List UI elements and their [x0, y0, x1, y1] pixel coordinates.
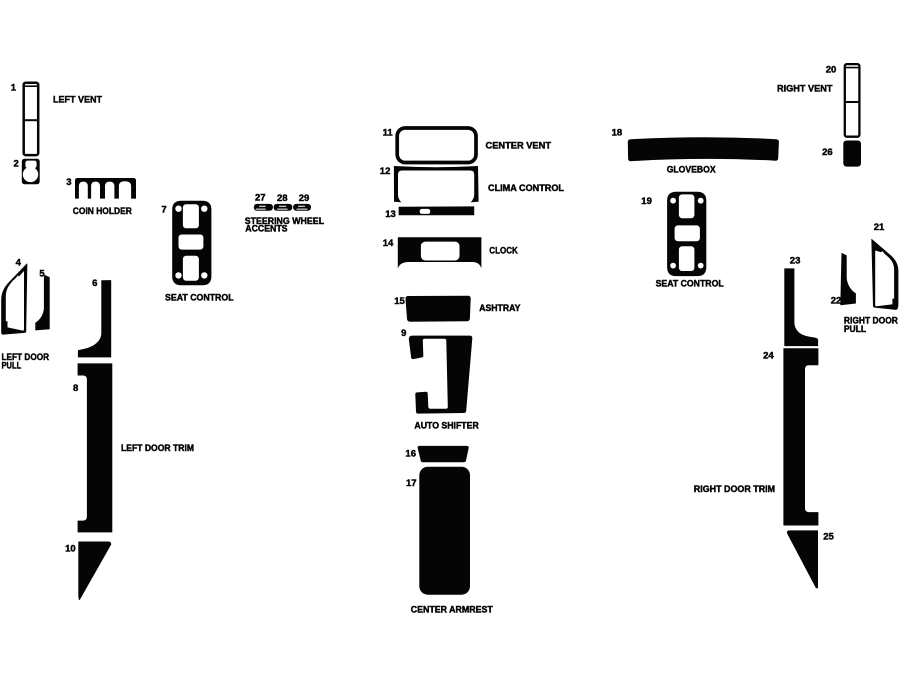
svg-text:RIGHT DOOR TRIM: RIGHT DOOR TRIM — [694, 484, 775, 495]
svg-text:CENTER VENT: CENTER VENT — [486, 140, 552, 151]
svg-text:23: 23 — [790, 255, 801, 266]
svg-text:LEFT VENT: LEFT VENT — [53, 95, 102, 106]
svg-text:PULL: PULL — [2, 361, 22, 372]
svg-text:19: 19 — [641, 196, 652, 207]
svg-text:18: 18 — [612, 128, 623, 139]
svg-text:20: 20 — [826, 64, 837, 75]
svg-text:24: 24 — [763, 351, 774, 362]
svg-text:GLOVEBOX: GLOVEBOX — [667, 164, 717, 175]
svg-text:25: 25 — [823, 532, 834, 543]
svg-text:17: 17 — [406, 478, 417, 489]
svg-text:22: 22 — [831, 296, 842, 307]
svg-text:29: 29 — [299, 193, 310, 204]
svg-text:SEAT CONTROL: SEAT CONTROL — [656, 279, 724, 290]
svg-text:5: 5 — [39, 269, 45, 280]
svg-text:15: 15 — [394, 296, 405, 307]
svg-text:13: 13 — [385, 209, 396, 220]
svg-text:21: 21 — [874, 222, 885, 233]
svg-text:LEFT DOOR TRIM: LEFT DOOR TRIM — [121, 443, 194, 454]
svg-text:4: 4 — [16, 258, 22, 269]
svg-text:ACCENTS: ACCENTS — [245, 223, 287, 234]
svg-text:7: 7 — [161, 205, 166, 216]
svg-text:16: 16 — [405, 449, 416, 460]
svg-text:26: 26 — [822, 147, 833, 158]
svg-text:12: 12 — [380, 166, 391, 177]
svg-text:AUTO SHIFTER: AUTO SHIFTER — [414, 420, 479, 431]
svg-text:1: 1 — [11, 82, 17, 93]
svg-text:RIGHT VENT: RIGHT VENT — [777, 83, 833, 94]
svg-text:2: 2 — [14, 158, 19, 169]
svg-text:11: 11 — [383, 128, 394, 139]
svg-text:SEAT CONTROL: SEAT CONTROL — [165, 292, 234, 303]
svg-text:CLIMA CONTROL: CLIMA CONTROL — [488, 183, 564, 194]
svg-text:14: 14 — [383, 238, 394, 249]
svg-text:8: 8 — [73, 383, 78, 394]
svg-text:COIN HOLDER: COIN HOLDER — [73, 206, 132, 217]
svg-text:10: 10 — [65, 543, 76, 554]
svg-text:PULL: PULL — [844, 324, 866, 335]
svg-text:9: 9 — [401, 328, 406, 339]
svg-text:CENTER ARMREST: CENTER ARMREST — [411, 605, 493, 616]
svg-text:ASHTRAY: ASHTRAY — [479, 303, 521, 314]
svg-text:CLOCK: CLOCK — [489, 245, 518, 256]
svg-text:27: 27 — [255, 193, 266, 204]
svg-text:6: 6 — [92, 278, 97, 289]
svg-text:28: 28 — [277, 193, 288, 204]
svg-text:3: 3 — [66, 177, 71, 188]
